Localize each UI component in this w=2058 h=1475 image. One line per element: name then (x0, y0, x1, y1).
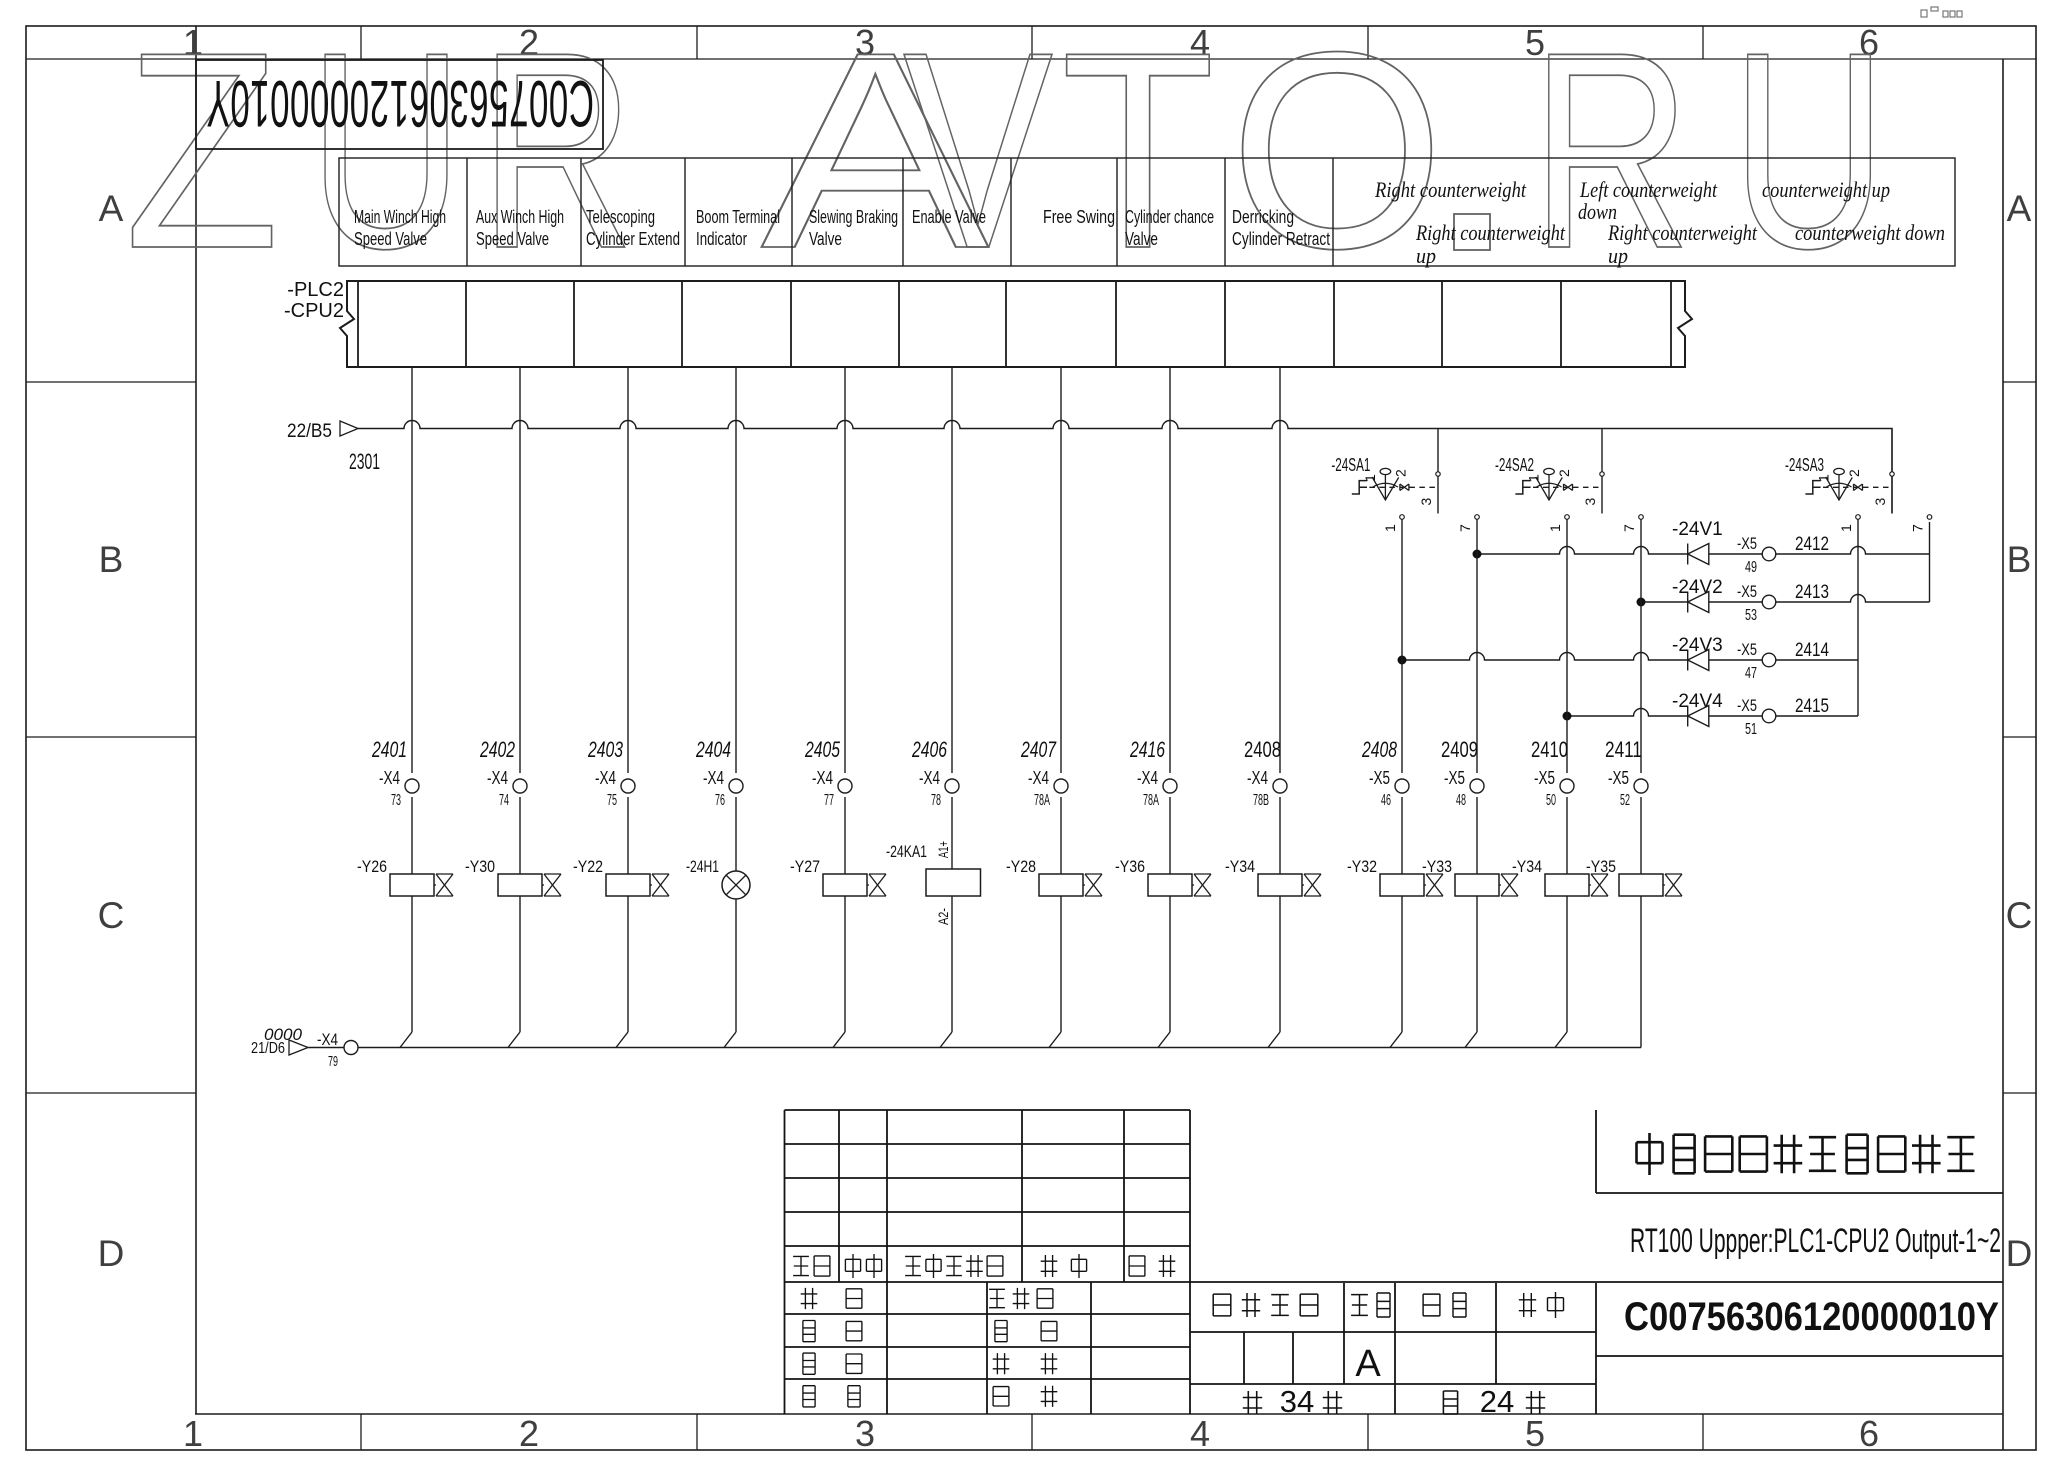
svg-text:2411: 2411 (1605, 737, 1642, 762)
svg-text:-Y30: -Y30 (465, 857, 495, 876)
svg-text:-X4: -X4 (317, 1030, 338, 1049)
svg-text:A2-: A2- (935, 908, 951, 925)
svg-text:-24SA1: -24SA1 (1331, 455, 1370, 475)
svg-text:-X4: -X4 (487, 768, 508, 788)
svg-text:Right counterweight: Right counterweight (1374, 177, 1527, 202)
svg-text:-Y34: -Y34 (1225, 857, 1255, 876)
svg-text:2416: 2416 (1129, 737, 1165, 762)
svg-text:78B: 78B (1253, 792, 1269, 809)
svg-text:Cylinder chance: Cylinder chance (1125, 207, 1214, 227)
svg-text:B: B (2007, 539, 2032, 580)
svg-text:-X5: -X5 (1737, 582, 1757, 601)
svg-text:5: 5 (1525, 1413, 1545, 1454)
svg-text:4: 4 (1190, 1413, 1210, 1454)
svg-text:-X5: -X5 (1737, 534, 1757, 553)
svg-text:2: 2 (1392, 469, 1408, 477)
svg-text:2412: 2412 (1795, 533, 1829, 555)
svg-text:78: 78 (931, 792, 941, 809)
svg-text:-X4: -X4 (595, 768, 616, 788)
svg-text:Main Winch High: Main Winch High (354, 207, 446, 227)
svg-text:Free Swing: Free Swing (1043, 207, 1115, 227)
svg-text:2410: 2410 (1531, 737, 1568, 762)
svg-text:3: 3 (1582, 498, 1598, 506)
svg-text:-X5: -X5 (1369, 768, 1390, 788)
svg-text:-24V3: -24V3 (1672, 635, 1723, 656)
svg-text:78A: 78A (1034, 792, 1050, 809)
svg-text:counterweight down: counterweight down (1795, 220, 1945, 245)
svg-text:76: 76 (715, 792, 725, 809)
svg-text:2402: 2402 (479, 737, 515, 762)
svg-text:3: 3 (855, 1413, 875, 1454)
svg-text:1: 1 (183, 1413, 203, 1454)
svg-text:2406: 2406 (911, 737, 947, 762)
svg-text:2409: 2409 (1441, 737, 1478, 762)
svg-text:-Y26: -Y26 (357, 857, 387, 876)
svg-text:49: 49 (1745, 559, 1757, 576)
svg-text:75: 75 (607, 792, 617, 809)
svg-text:6: 6 (1859, 1413, 1879, 1454)
svg-text:2: 2 (1556, 469, 1572, 477)
svg-text:C: C (98, 895, 125, 936)
svg-text:-PLC2: -PLC2 (287, 279, 344, 301)
svg-text:3: 3 (1418, 498, 1434, 506)
svg-text:-Y27: -Y27 (790, 857, 820, 876)
svg-text:2407: 2407 (1020, 737, 1057, 762)
svg-text:7: 7 (1621, 524, 1637, 532)
svg-text:2401: 2401 (371, 737, 407, 762)
svg-text:-Y36: -Y36 (1115, 857, 1145, 876)
svg-text:C00756306120000010Y: C00756306120000010Y (206, 67, 594, 141)
svg-text:R: R (480, 0, 635, 307)
svg-text:-X5: -X5 (1737, 640, 1757, 659)
svg-text:Telescoping: Telescoping (586, 207, 655, 227)
svg-text:up: up (1416, 243, 1436, 268)
svg-text:-X5: -X5 (1737, 696, 1757, 715)
svg-text:53: 53 (1745, 607, 1757, 624)
svg-text:Enable Valve: Enable Valve (912, 207, 986, 227)
svg-text:1: 1 (1547, 524, 1563, 532)
svg-text:2301: 2301 (349, 449, 380, 474)
svg-text:-X4: -X4 (919, 768, 940, 788)
svg-text:73: 73 (391, 792, 401, 809)
svg-text:7: 7 (1910, 524, 1926, 532)
svg-text:C: C (2006, 895, 2033, 936)
svg-text:Indicator: Indicator (696, 229, 747, 249)
svg-text:51: 51 (1745, 721, 1757, 738)
svg-text:1: 1 (1382, 524, 1398, 532)
svg-text:24: 24 (1480, 1384, 1514, 1419)
svg-text:Cylinder Extend: Cylinder Extend (586, 229, 680, 249)
svg-text:Speed Valve: Speed Valve (354, 229, 427, 249)
svg-text:50: 50 (1546, 792, 1556, 809)
svg-text:A: A (99, 188, 124, 229)
svg-text:48: 48 (1456, 792, 1466, 809)
svg-text:79: 79 (328, 1053, 338, 1070)
svg-text:D: D (2006, 1233, 2033, 1274)
svg-text:-X4: -X4 (1247, 768, 1268, 788)
svg-text:-X4: -X4 (379, 768, 400, 788)
svg-text:52: 52 (1620, 792, 1630, 809)
svg-text:Valve: Valve (1125, 229, 1158, 249)
svg-text:-X5: -X5 (1444, 768, 1465, 788)
svg-text:counterweight up: counterweight up (1762, 177, 1890, 202)
svg-text:Derricking: Derricking (1232, 207, 1294, 227)
svg-text:V: V (903, 0, 1054, 307)
svg-text:2408: 2408 (1361, 737, 1397, 762)
svg-text:A: A (2007, 188, 2032, 229)
svg-text:2415: 2415 (1795, 695, 1829, 717)
svg-text:-24H1: -24H1 (686, 857, 719, 876)
svg-text:34: 34 (1280, 1384, 1314, 1419)
svg-text:21/D6: 21/D6 (251, 1040, 285, 1057)
svg-text:T: T (1061, 0, 1215, 307)
svg-text:1: 1 (1838, 524, 1854, 532)
svg-text:Right counterweight: Right counterweight (1607, 220, 1758, 245)
svg-text:22/B5: 22/B5 (287, 421, 332, 442)
svg-text:77: 77 (824, 792, 834, 809)
svg-text:78A: 78A (1143, 792, 1159, 809)
svg-text:2408: 2408 (1244, 737, 1281, 762)
svg-text:Speed Valve: Speed Valve (476, 229, 549, 249)
svg-text:2404: 2404 (695, 737, 731, 762)
svg-text:-24V4: -24V4 (1672, 691, 1723, 712)
svg-text:2413: 2413 (1795, 581, 1829, 603)
svg-text:Boom Terminal: Boom Terminal (696, 207, 780, 227)
svg-text:46: 46 (1381, 792, 1391, 809)
svg-text:Cylinder Retract: Cylinder Retract (1232, 229, 1330, 249)
svg-text:-Y34: -Y34 (1512, 857, 1542, 876)
svg-text:-Y22: -Y22 (573, 857, 603, 876)
svg-text:Slewing Braking: Slewing Braking (809, 207, 898, 227)
svg-text:-24V2: -24V2 (1672, 577, 1723, 598)
svg-text:2414: 2414 (1795, 639, 1829, 661)
svg-text:2405: 2405 (804, 737, 840, 762)
svg-text:-24SA2: -24SA2 (1495, 455, 1534, 475)
svg-text:U: U (1731, 0, 1887, 307)
svg-text:-24V1: -24V1 (1672, 519, 1723, 540)
svg-text:-X5: -X5 (1608, 768, 1629, 788)
svg-text:Aux Winch High: Aux Winch High (476, 207, 564, 227)
svg-text:O: O (1230, 0, 1445, 307)
svg-text:-X4: -X4 (703, 768, 724, 788)
svg-text:2403: 2403 (587, 737, 623, 762)
svg-text:U: U (309, 0, 464, 307)
svg-text:47: 47 (1745, 665, 1757, 682)
svg-text:A: A (1355, 1343, 1381, 1385)
svg-text:-Y33: -Y33 (1422, 857, 1452, 876)
svg-text:Right counterweight: Right counterweight (1415, 220, 1566, 245)
svg-text:3: 3 (1872, 498, 1888, 506)
svg-text:7: 7 (1457, 524, 1473, 532)
svg-text:2: 2 (1846, 469, 1862, 477)
svg-text:-X5: -X5 (1534, 768, 1555, 788)
svg-text:A1+: A1+ (935, 841, 951, 858)
svg-text:-X4: -X4 (812, 768, 833, 788)
svg-text:D: D (98, 1233, 125, 1274)
svg-text:-Y28: -Y28 (1006, 857, 1036, 876)
svg-text:C00756306120000010Y: C00756306120000010Y (1624, 1295, 1999, 1339)
svg-text:-24SA3: -24SA3 (1785, 455, 1824, 475)
svg-text:Z: Z (125, 0, 280, 307)
svg-text:Valve: Valve (809, 229, 842, 249)
svg-text:-X4: -X4 (1028, 768, 1049, 788)
svg-text:-Y32: -Y32 (1347, 857, 1377, 876)
svg-text:-CPU2: -CPU2 (284, 300, 344, 322)
svg-text:-Y35: -Y35 (1586, 857, 1616, 876)
svg-text:RT100 Uppper:PLC1-CPU2 Output-: RT100 Uppper:PLC1-CPU2 Output-1~2 (1630, 1222, 2001, 1260)
svg-text:2: 2 (519, 1413, 539, 1454)
svg-text:up: up (1608, 243, 1628, 268)
svg-text:-24KA1: -24KA1 (886, 842, 927, 861)
svg-text:-X4: -X4 (1137, 768, 1158, 788)
svg-text:B: B (99, 539, 124, 580)
svg-text:74: 74 (499, 792, 509, 809)
